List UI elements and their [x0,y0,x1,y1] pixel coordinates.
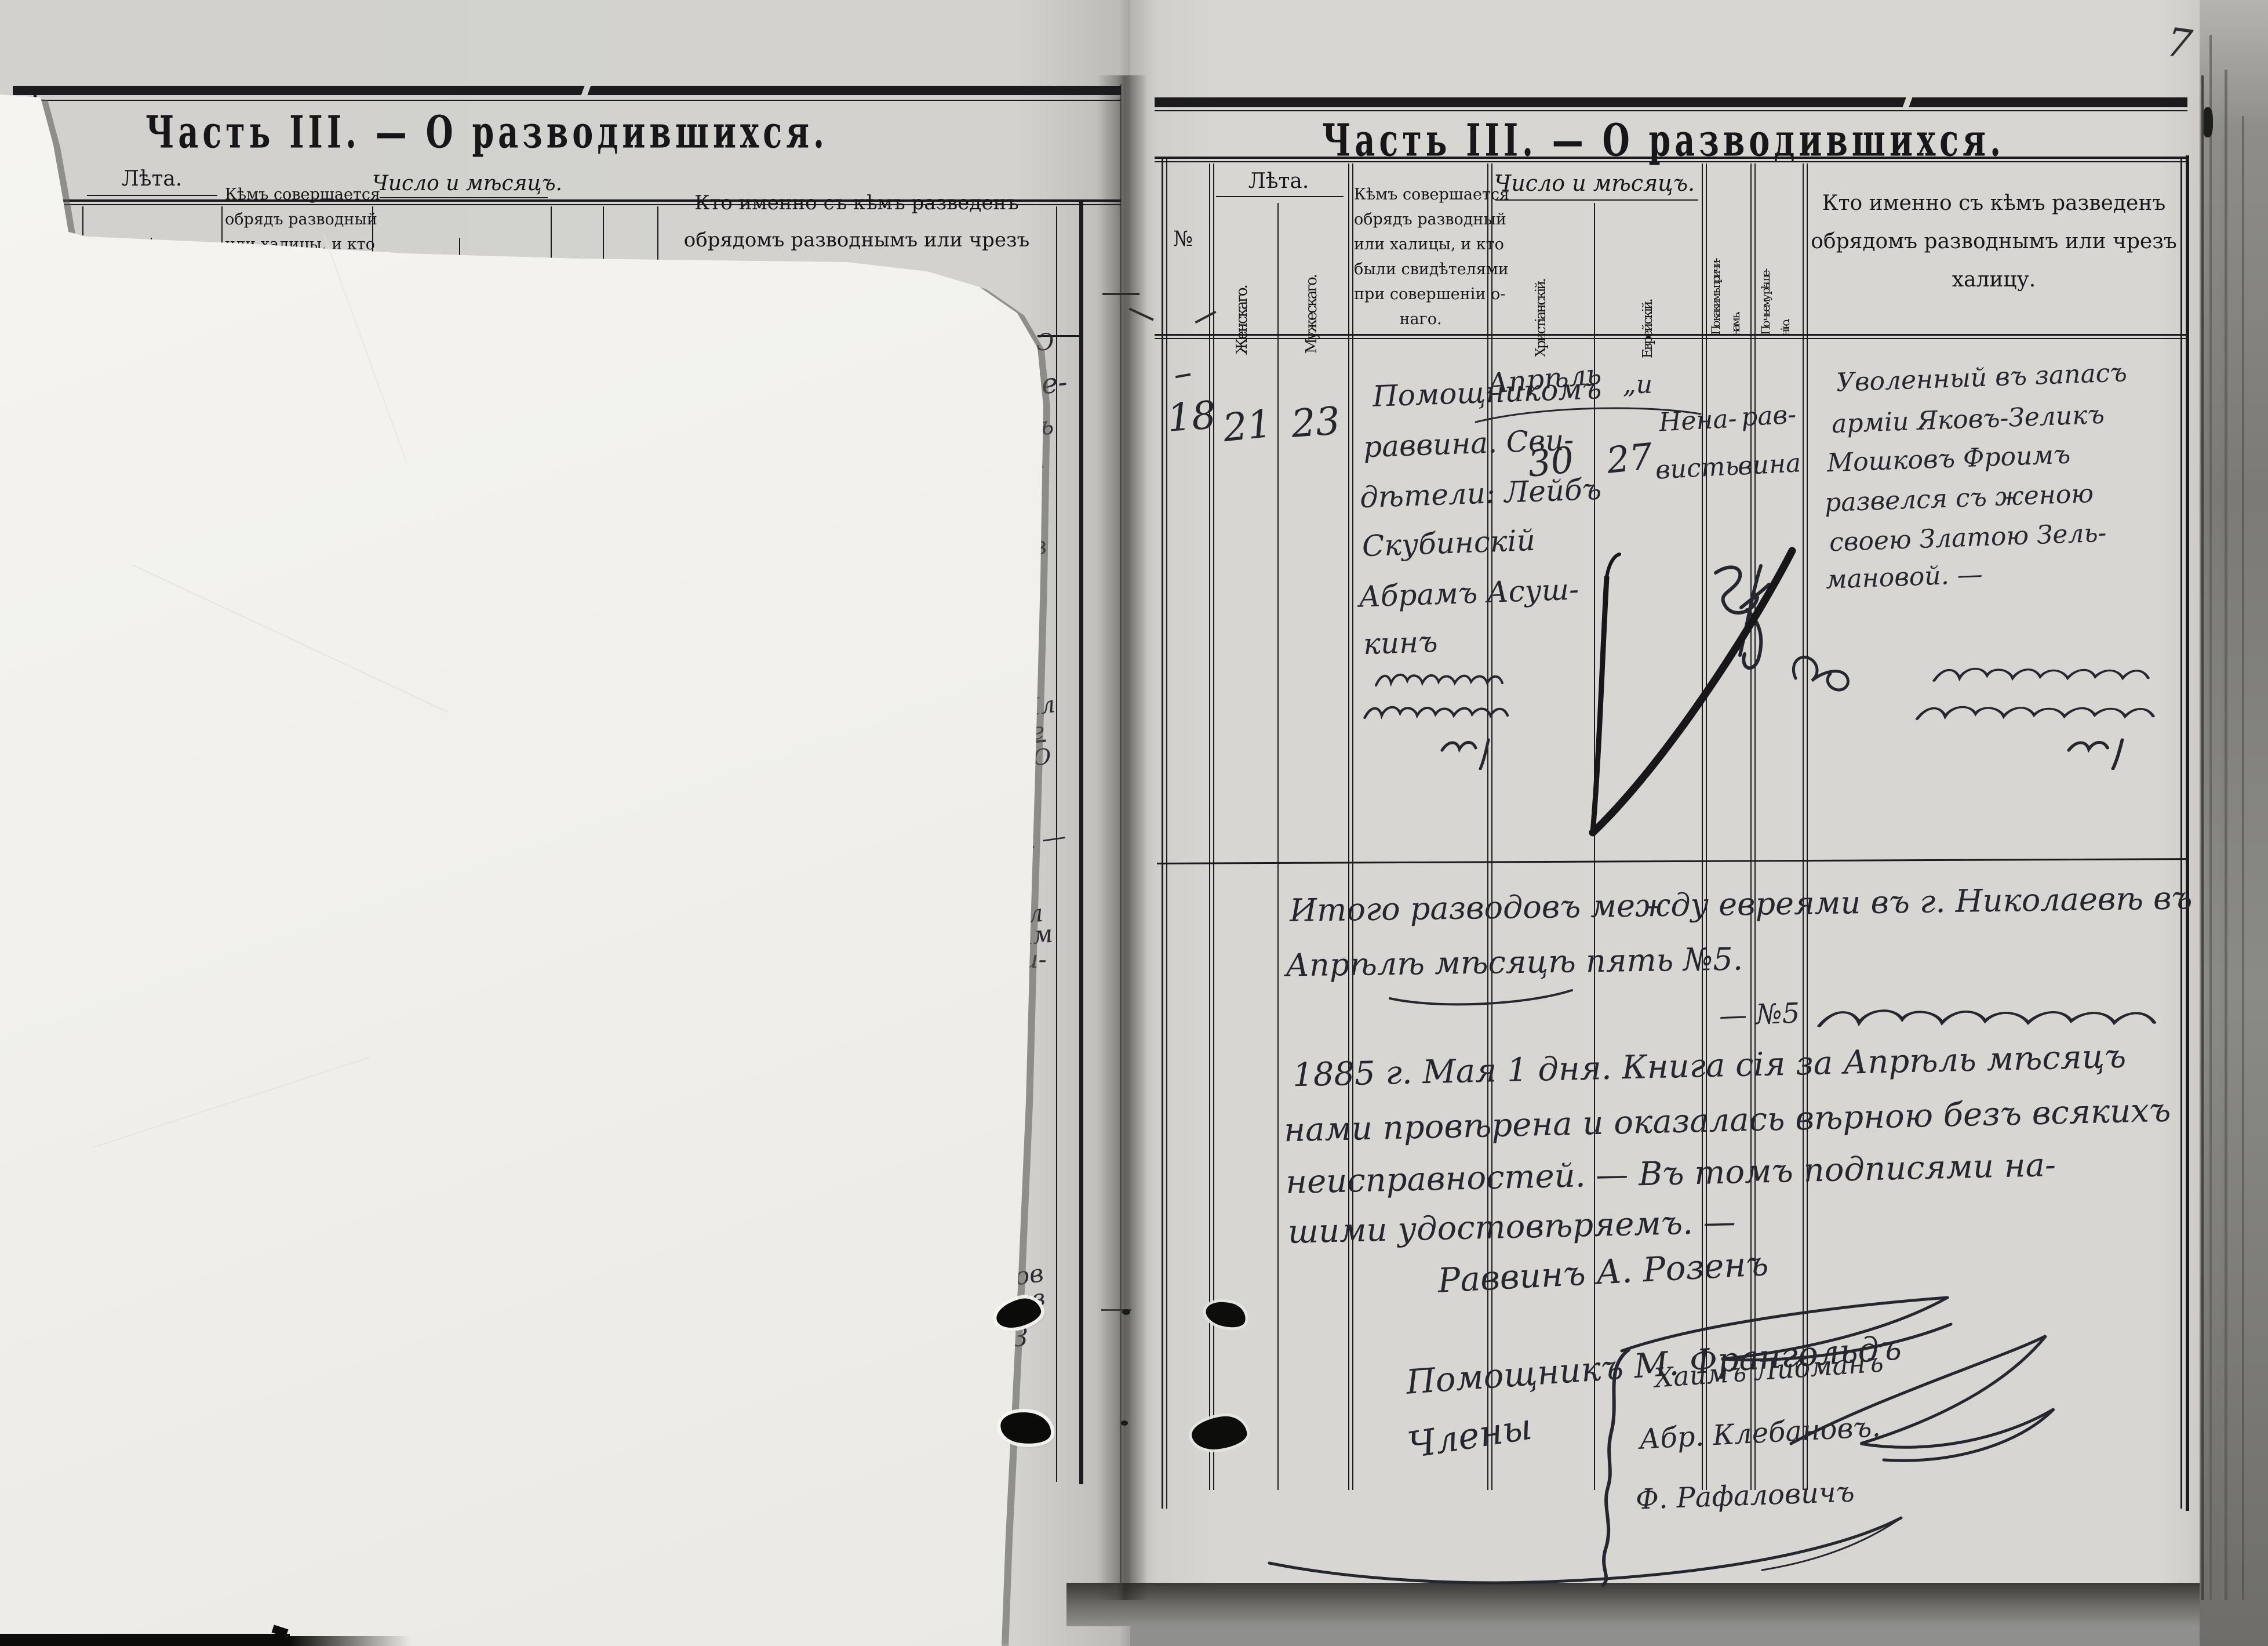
rp-left-border-inner [1166,158,1167,1509]
hw-officiant-line: кинъ [1363,625,1438,661]
hebrew-cursive-line [2063,735,2150,770]
wormhole-speck [1122,1309,1130,1315]
rp-top-border-thin [1155,110,2187,111]
lp-top-border [13,86,1121,95]
signature-underline-flourish [1252,1507,1924,1594]
gutter-shadow [1097,75,1148,1600]
scanned-registry-spread: Часть III. — О разводившихся. № Лѣта. Же… [0,0,2268,1646]
fore-edge-dark-blob [2203,107,2213,137]
hebrew-cursive-line [1374,668,1507,693]
rp-right-border [2186,155,2189,1511]
rp-col-who-line: халицу. [1807,268,2180,292]
rp-col-date-group: Число и мѣсяцъ. [1487,170,1702,196]
hw-age-female: 21 [1221,401,1274,450]
rp-right-border-inner [2180,158,2182,1509]
rp-col-line [1213,163,1214,1490]
rp-col-leta: Лѣта. [1209,169,1348,193]
rp-col-line [1348,163,1349,1490]
checkmark-stroke [1559,522,1826,870]
rp-left-border [1162,158,1163,1509]
hw-cause-line: Нена- [1658,404,1738,438]
rp-officiant-line: обрядъ разводный [1354,207,1487,232]
lp-page-title: Часть III. — О разводившихся. [139,106,835,158]
rp-col-line [1277,203,1279,1490]
hebrew-cursive-line [1813,1001,2167,1038]
hw-hebrew-ref: — №5 [1719,997,1800,1033]
wormhole-speck [1121,1420,1128,1426]
hw-divorced-line: мановой. — [1825,559,1983,594]
rp-officiant-line: при совершеніи о- [1354,282,1487,307]
fore-edge-streak [2242,116,2244,1600]
loose-white-sheet [0,90,1050,1646]
lp-col-leta: Лѣта. [82,167,221,191]
rp-officiant-line: были свидѣтелями [1354,257,1487,282]
hw-ditto-hebrew-date: „и [1623,370,1652,399]
hw-underline-flourish [1385,986,1577,1009]
rp-col-no: № [1173,227,1193,251]
rp-officiant-line: или халицы, и кто [1354,232,1487,257]
rp-col-decision-1: По чьему рѣше- [1759,187,1772,335]
rp-col-decision-2: нію. [1778,255,1792,336]
rp-col-line [1352,163,1353,1490]
hw-day-christian: 30 [1526,438,1575,485]
lp-col-date-group: Число и мѣсяцъ. [372,172,551,195]
hw-officiant-line: Скубинскій [1361,524,1536,563]
fore-edge-streak [2225,70,2227,1600]
rp-col-officiant: Кѣмъ совершается обрядъ разводный или ха… [1354,182,1487,332]
hebrew-cursive-line [1437,735,1513,770]
rp-col-hebrew: Еврейскій. [1640,219,1655,358]
fore-edge-streak [2209,35,2212,1600]
scan-bottom-edge [0,1634,290,1646]
rp-header-rule [1155,157,2187,159]
hw-decision-line: вина [1737,448,1802,481]
rp-officiant-line: Кѣмъ совершается [1354,182,1487,207]
gutter-tick [1102,293,1140,295]
rp-col-cause-2: намъ. [1728,249,1742,336]
rp-top-border [1155,97,2187,107]
lp-col-who-line: обрядомъ разводнымъ или чрезъ [657,228,1056,252]
lp-right-border [1079,199,1083,1484]
hw-day-hebrew: 27 [1604,435,1654,482]
hebrew-cursive-line [1362,700,1513,726]
hebrew-cursive-line [1913,699,2162,728]
rp-col-who-line: обрядомъ разводнымъ или чрезъ [1807,230,2180,253]
hw-decision-line: рав- [1741,400,1797,433]
rp-date-underline [1495,199,1698,201]
lp-top-border-thin [35,100,1121,101]
rp-header-rule-thin [1155,161,2187,162]
lp-leta-underline [87,195,217,196]
gutter-fold-line [1120,84,1122,1592]
lp-date-underline [380,197,548,198]
lp-col-who-line: Кто именно съ кѣмъ разведенъ [657,191,1056,215]
rp-col-line [1209,163,1210,1490]
rp-col-female: Женскаго. [1233,216,1251,355]
hw-age-male: 23 [1290,398,1341,446]
rp-col-who-line: Кто именно съ кѣмъ разведенъ [1807,191,2180,215]
rp-col-cause-1: По какимъ причи- [1709,187,1723,335]
rp-col-male: Мужескаго. [1303,209,1320,354]
rp-page-edge [2201,75,2204,1600]
rp-col-christian: Христіанскій. [1532,212,1549,357]
hw-summary-line: Апрѣлѣ мѣсяцѣ пять №5. [1286,940,1743,983]
hw-cause-line: висть [1655,451,1740,485]
rp-officiant-line: наго. [1354,307,1487,332]
lp-officiant-line: обрядъ разводный [225,207,371,232]
lp-officiant-line: Кѣмъ совершается [225,182,371,207]
scan-bottom-edge-fade [290,1636,412,1646]
hebrew-cursive-line [1930,661,2156,690]
hw-entry-number: 18 [1166,393,1217,441]
rp-leta-underline [1216,196,1344,197]
